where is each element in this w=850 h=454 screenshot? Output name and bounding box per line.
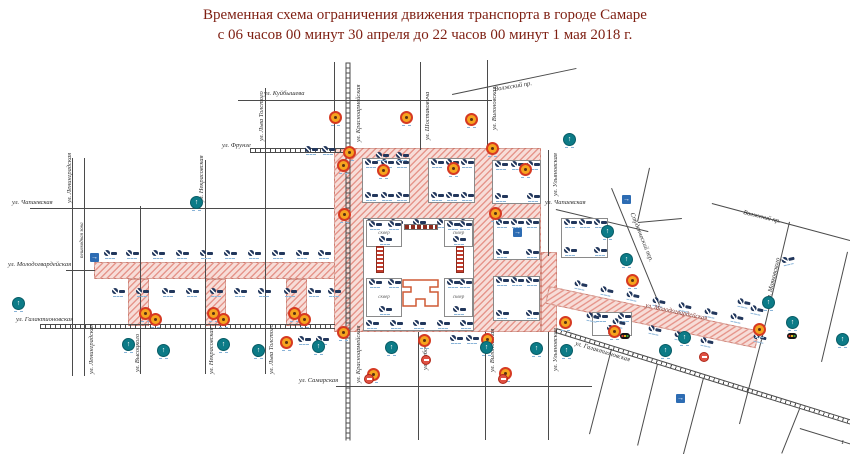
caption-dashes [254,358,263,359]
car-glyph [386,238,392,241]
street-label: ул. Чапаевская [545,200,586,207]
no-stopping-sign-icon [376,152,390,163]
car-glyph [533,221,539,224]
direction-sign-icon: ↑ [252,344,265,359]
caption-dashes [521,177,530,178]
street-line [84,158,85,376]
direction-sign-icon: ↑ [786,316,799,331]
sign-disc [511,161,517,167]
caption-dashes [562,358,571,359]
sign-disc [186,288,192,294]
no-stopping-sign-icon [258,288,272,299]
direction-disc: ↑ [157,344,170,357]
caption-dashes [448,287,458,288]
no-stopping-sign-icon [104,250,118,261]
direction-disc: ↑ [563,133,576,146]
no-entry-disc [421,355,431,365]
sign-disc [700,337,707,344]
closure-disc [298,313,311,326]
sign-disc [272,250,278,256]
caption-dashes [449,176,458,177]
direction-disc: ↑ [620,253,633,266]
caption-dashes [273,258,283,259]
car-glyph [503,251,509,254]
no-stopping-sign-icon [431,192,445,203]
caption-dashes [561,330,570,331]
no-stopping-sign-icon [284,288,298,299]
car-glyph [420,322,426,325]
car-glyph [633,294,639,298]
caption-dashes [249,258,259,259]
no-stopping-sign-icon [460,320,474,331]
car-glyph [291,290,297,293]
sign-disc [453,236,459,242]
caption-dashes [580,227,590,228]
car-glyph [325,252,331,255]
caption-dashes [402,125,411,126]
sign-disc [737,298,744,305]
car-glyph [388,194,394,197]
caption-dashes [755,337,764,338]
sign-disc [461,192,467,198]
car-glyph [241,290,247,293]
sign-disc [459,221,465,227]
caption-dashes [784,263,794,266]
caption-dashes [454,314,464,315]
caption-dashes [235,296,245,297]
no-stopping-sign-icon [579,219,593,230]
sign-disc [152,250,158,256]
caption-dashes [432,167,442,168]
street-label: ул. Льва Толстого [269,324,276,374]
car-glyph [376,281,382,284]
caption-dashes [622,267,631,268]
caption-dashes [595,255,605,256]
sign-disc [258,288,264,294]
direction-disc: ↑ [560,344,573,357]
no-stopping-sign-icon [365,192,379,203]
road-closure-sign-icon [298,313,311,328]
no-entry-sign-icon [421,355,431,365]
car-glyph [193,290,199,293]
caption-dashes [389,229,399,230]
car-glyph [376,223,382,226]
car-glyph [744,301,750,305]
sign-disc [366,320,372,326]
sign-disc [526,219,532,225]
caption-dashes [323,154,333,155]
sign-disc [162,288,168,294]
car-glyph [581,283,587,287]
direction-sign-icon: ↑ [385,341,398,356]
direction-disc: ↑ [312,340,325,353]
no-stopping-sign-icon [272,250,286,261]
sign-disc [234,288,240,294]
caption-dashes [397,200,407,201]
street-line [238,100,492,101]
sign-disc [136,288,142,294]
caption-dashes [159,358,168,359]
no-stopping-sign-icon [585,312,601,326]
road-closure-sign-icon [149,313,162,328]
one-way-sign-icon: → [622,195,631,204]
one-way-square: → [513,228,522,237]
street-label: ул. Галактионовская [16,317,73,324]
street-line [548,332,549,440]
sign-disc [388,279,394,285]
no-stopping-sign-icon [396,152,410,163]
no-stopping-sign-icon [446,192,460,203]
sign-disc [586,312,593,319]
traffic-light-body [620,333,630,339]
closure-disc [338,208,351,221]
car-glyph [444,322,450,325]
caption-dashes [382,200,392,201]
sign-disc [210,288,216,294]
direction-sign-icon: ↑ [836,333,849,348]
direction-sign-icon: ↑ [157,344,170,359]
caption-dashes [448,229,458,230]
street-label: ул. Молодогвардейская [8,262,71,269]
street-label: ул. Льва Толстого [259,91,266,141]
road-closure-sign-icon [377,164,390,179]
sign-disc [750,305,757,312]
caption-dashes [661,358,670,359]
no-stopping-sign-icon [224,250,238,261]
caption-dashes [105,258,115,259]
sign-disc [600,286,607,293]
no-stopping-sign-icon [564,219,578,230]
direction-disc: ↑ [762,296,775,309]
direction-sign-icon: ↑ [217,338,230,353]
no-stopping-sign-icon [210,288,224,299]
caption-dashes [297,258,307,259]
no-stopping-sign-icon [564,247,578,258]
one-way-sign-icon: → [513,228,522,237]
street-label: Волжский пр. [742,210,780,225]
no-stopping-sign-icon [495,193,509,204]
sign-disc [369,279,375,285]
sign-disc [511,219,517,225]
street-line [638,218,682,223]
car-glyph [503,312,509,315]
caption-dashes [163,296,173,297]
no-stopping-sign-icon [234,288,248,299]
sign-disc [379,236,385,242]
car-glyph [169,290,175,293]
no-stopping-sign-icon [162,288,176,299]
caption-dashes [432,200,442,201]
sign-disc [447,279,453,285]
street-line [487,60,488,150]
car-glyph [473,337,479,340]
closure-disc [337,159,350,172]
caption-dashes [259,296,269,297]
caption-dashes [309,296,319,297]
caption-dashes [314,354,323,355]
car-glyph [737,316,743,320]
sign-disc [460,320,466,326]
sign-disc [284,288,290,294]
sign-disc [574,280,581,287]
direction-sign-icon: ↑ [480,341,493,356]
no-entry-sign-icon [498,374,508,384]
street-label: пешеходная зона [80,222,85,258]
closure-disc [280,336,293,349]
caption-dashes [462,200,472,201]
car-glyph [315,290,321,293]
car-glyph [571,221,577,224]
caption-dashes [753,341,763,344]
direction-sign-icon: ↑ [530,342,543,357]
closure-disc [400,111,413,124]
sign-disc [369,221,375,227]
caption-dashes [380,244,390,245]
tram-line [346,62,351,440]
car-glyph [593,315,599,319]
caption-dashes [497,318,507,319]
road-closure-sign-icon [338,208,351,223]
sign-disc [730,313,737,320]
no-stopping-sign-icon [594,247,608,258]
car-glyph [601,221,607,224]
sign-disc [431,192,437,198]
caption-dashes [700,345,710,348]
sign-disc [388,221,394,227]
car-glyph [335,290,341,293]
sign-disc [376,152,382,158]
car-glyph [534,195,540,198]
sign-disc [224,250,230,256]
car-glyph [438,161,444,164]
caption-dashes [527,257,537,258]
sign-disc [447,221,453,227]
sign-disc [328,288,334,294]
caption-dashes [177,258,187,259]
caption-dashes [339,340,348,341]
closure-disc [465,113,478,126]
car-glyph [217,290,223,293]
no-stopping-sign-icon [496,277,510,288]
sign-disc [431,159,437,165]
car-glyph [788,257,795,261]
direction-disc: ↑ [252,344,265,357]
no-stopping-sign-icon [450,335,464,346]
no-stopping-sign-icon [461,159,475,170]
street-label: ул. Фрунзе [222,143,251,150]
car-glyph [395,223,401,226]
car-glyph [468,194,474,197]
closure-disc [329,111,342,124]
traffic-light-icon [620,333,630,339]
sign-disc [526,310,532,316]
tribune-stand [456,246,464,273]
caption-dashes [491,221,500,222]
sign-disc [612,318,619,325]
car-glyph [534,163,540,166]
no-stopping-sign-icon [526,310,540,321]
traffic-light-body [787,333,797,339]
car-glyph [571,249,577,252]
theater-building [397,279,444,312]
street-label: 1 [841,440,844,447]
no-stopping-sign-icon [496,310,510,321]
no-stopping-sign-icon [305,146,319,157]
car-glyph [685,305,691,309]
caption-dashes [387,355,396,356]
caption-dashes [331,125,340,126]
caption-dashes [467,343,477,344]
caption-dashes [680,345,689,346]
sign-disc [466,335,472,341]
road-closure-sign-icon [559,316,572,331]
caption-dashes [113,296,123,297]
caption-dashes [496,169,506,170]
car-glyph [659,300,665,304]
caption-dashes [512,285,522,286]
road-closure-sign-icon [337,159,350,174]
car-glyph [533,279,539,282]
car-glyph [265,290,271,293]
restricted-zone [94,262,346,279]
sign-disc [461,159,467,165]
no-stopping-sign-icon [526,219,540,230]
no-stopping-sign-icon [186,288,200,299]
sign-disc [126,250,132,256]
street-line [781,409,800,454]
direction-disc: ↑ [530,342,543,355]
car-glyph [518,221,524,224]
direction-disc: ↑ [678,331,691,344]
caption-dashes [151,327,160,328]
caption-dashes [610,339,619,340]
no-stopping-sign-icon [200,250,214,261]
car-glyph [503,279,509,282]
no-stopping-sign-icon [453,306,467,317]
caption-dashes [460,287,470,288]
sign-disc [176,250,182,256]
car-glyph [533,251,539,254]
car-glyph [707,340,713,344]
sign-disc [381,192,387,198]
caption-dashes [306,154,316,155]
closure-disc [447,162,460,175]
street-line [66,270,95,271]
caption-dashes [527,227,537,228]
sign-disc [496,277,502,283]
caption-dashes [565,227,575,228]
sign-disc [781,256,788,263]
road-closure-sign-icon [465,113,478,128]
caption-dashes [586,320,596,323]
caption-dashes [447,200,457,201]
sign-disc [594,247,600,253]
caption-dashes [574,288,584,291]
no-stopping-sign-icon [298,336,312,347]
car-glyph [518,279,524,282]
direction-sign-icon: ↑ [560,344,573,359]
caption-dashes [380,314,390,315]
sign-disc [527,193,533,199]
direction-disc: ↑ [190,196,203,209]
street-label: ул. Ленинградская [67,153,74,203]
road-closure-sign-icon [753,323,766,338]
car-glyph [159,252,165,255]
caption-dashes [497,227,507,228]
direction-disc: ↑ [122,338,135,351]
car-glyph [607,289,613,293]
street-line [637,168,650,222]
road-closure-sign-icon [489,207,502,222]
road-closure-sign-icon [280,336,293,351]
car-glyph [373,322,379,325]
traffic-light-icon [787,333,797,339]
closure-disc [753,323,766,336]
sign-disc [308,288,314,294]
car-glyph [133,252,139,255]
no-stopping-sign-icon [413,320,427,331]
caption-dashes [377,160,387,161]
caption-dashes [414,328,424,329]
road-closure-sign-icon [418,334,431,349]
sign-disc [413,320,419,326]
map-canvas: скверскверскверскверул. Куйбышеваул. Фру… [0,0,850,454]
no-stopping-sign-icon [781,255,797,269]
no-stopping-sign-icon [466,335,480,346]
caption-dashes [192,210,201,211]
sign-disc [298,336,304,342]
caption-dashes [14,311,23,312]
direction-disc: ↑ [659,344,672,357]
car-glyph [279,252,285,255]
car-glyph [207,252,213,255]
closure-disc [489,207,502,220]
car-glyph [601,249,607,252]
street-label: ул. Куйбышева [264,91,304,98]
caption-dashes [532,356,541,357]
no-stopping-sign-icon [390,320,404,331]
caption-dashes [219,327,228,328]
street-label: ул. Красноармейская [356,326,363,383]
car-glyph [468,161,474,164]
caption-dashes [497,285,507,286]
no-entry-disc [498,374,508,384]
car-glyph [503,221,509,224]
closure-disc [486,142,499,155]
road-closure-sign-icon [486,142,499,157]
no-stopping-sign-icon [176,250,190,261]
street-label: ул. Маяковского [766,257,782,301]
street-line [452,68,576,95]
street-label: ул. Ульяновская [553,153,560,196]
direction-sign-icon: ↑ [190,196,203,211]
no-stopping-sign-icon [328,288,342,299]
sign-disc [379,306,385,312]
sign-disc [305,146,311,152]
street-line [637,364,658,446]
sign-disc [396,192,402,198]
one-way-square: → [90,253,99,262]
car-glyph [460,238,466,241]
car-glyph [502,163,508,166]
caption-dashes [340,222,349,223]
closure-disc [418,334,431,347]
no-entry-sign-icon [699,352,709,362]
traffic-restriction-map: Временная схема ограничения движения тра… [0,0,850,454]
caption-dashes [370,229,380,230]
closure-disc [519,163,532,176]
road-closure-sign-icon [400,111,413,126]
